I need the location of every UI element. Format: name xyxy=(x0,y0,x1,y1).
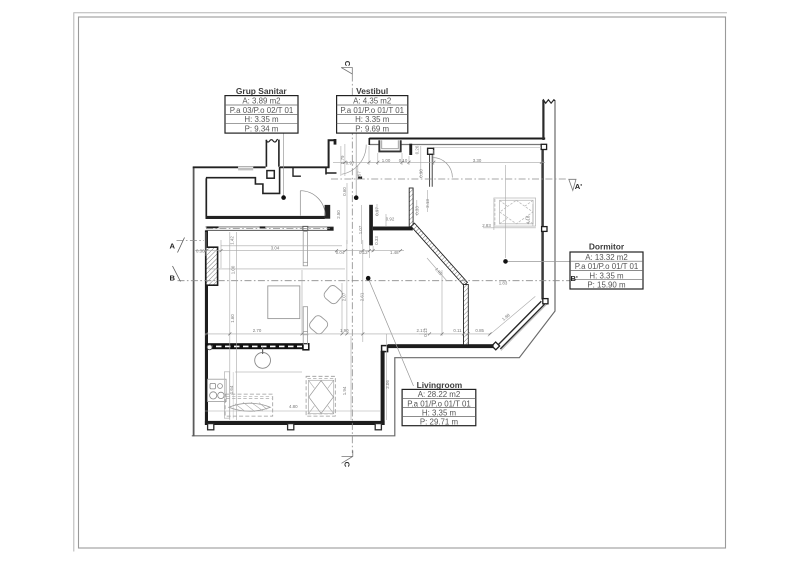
svg-text:1.94: 1.94 xyxy=(342,386,347,395)
svg-text:H: 3.35 m: H: 3.35 m xyxy=(422,408,457,417)
svg-text:2.50: 2.50 xyxy=(336,210,341,219)
svg-text:1.07: 1.07 xyxy=(358,225,363,234)
svg-text:1.60: 1.60 xyxy=(230,314,235,323)
svg-text:Vestibul: Vestibul xyxy=(356,86,388,96)
svg-text:P: 9.69 m: P: 9.69 m xyxy=(355,125,389,134)
svg-text:H: 3.35 m: H: 3.35 m xyxy=(244,115,279,124)
svg-text:Livingroom: Livingroom xyxy=(417,380,463,390)
svg-text:A: 3.89 m2: A: 3.89 m2 xyxy=(242,97,280,106)
svg-text:0.60: 0.60 xyxy=(342,187,347,196)
svg-text:0.97: 0.97 xyxy=(346,161,355,166)
svg-text:A: 28.22 m2: A: 28.22 m2 xyxy=(418,390,461,399)
svg-text:P: 29.71 m: P: 29.71 m xyxy=(420,418,459,427)
svg-text:0.92: 0.92 xyxy=(386,216,395,221)
svg-text:2.70: 2.70 xyxy=(253,328,262,333)
svg-text:1.00: 1.00 xyxy=(231,265,236,274)
svg-text:0.12: 0.12 xyxy=(359,250,368,255)
svg-text:0.33: 0.33 xyxy=(374,236,379,245)
svg-text:0.04: 0.04 xyxy=(336,250,345,255)
svg-text:0.79: 0.79 xyxy=(340,155,345,164)
svg-text:2.61: 2.61 xyxy=(359,292,364,301)
svg-text:0.11: 0.11 xyxy=(453,328,462,333)
svg-text:1.42: 1.42 xyxy=(230,236,235,245)
svg-text:2.13: 2.13 xyxy=(425,199,430,208)
svg-text:2.83: 2.83 xyxy=(482,223,491,228)
svg-text:P.a 03/P.o 02/T 01: P.a 03/P.o 02/T 01 xyxy=(230,106,294,115)
svg-text:A: A xyxy=(170,242,176,251)
svg-text:3.04: 3.04 xyxy=(271,245,280,250)
svg-text:P.a 01/P.o 01/T 01: P.a 01/P.o 01/T 01 xyxy=(575,262,639,271)
svg-text:2.07: 2.07 xyxy=(342,292,347,301)
svg-text:1.57: 1.57 xyxy=(356,171,361,180)
svg-text:0.26: 0.26 xyxy=(414,145,419,154)
svg-text:B': B' xyxy=(571,274,578,283)
svg-text:3.30: 3.30 xyxy=(473,158,482,163)
svg-text:0.30: 0.30 xyxy=(196,248,205,253)
svg-text:H: 3.35 m: H: 3.35 m xyxy=(589,271,624,280)
svg-text:4.18: 4.18 xyxy=(526,215,531,224)
svg-text:B: B xyxy=(170,274,176,283)
svg-text:P.a 01/P.o 01/T 01: P.a 01/P.o 01/T 01 xyxy=(340,106,404,115)
svg-text:P.a 01/P.o 01/T 01: P.a 01/P.o 01/T 01 xyxy=(407,399,471,408)
svg-text:0.33: 0.33 xyxy=(414,206,419,215)
svg-text:H: 3.35 m: H: 3.35 m xyxy=(355,115,390,124)
svg-text:1.64: 1.64 xyxy=(229,385,234,394)
svg-text:Grup Sanitar: Grup Sanitar xyxy=(236,86,287,96)
svg-text:2.06: 2.06 xyxy=(385,380,390,389)
svg-text:1.90: 1.90 xyxy=(340,328,349,333)
svg-text:4.80: 4.80 xyxy=(289,404,298,409)
svg-text:0.90: 0.90 xyxy=(418,169,423,178)
svg-text:A': A' xyxy=(575,182,582,191)
svg-text:C: C xyxy=(343,61,352,67)
svg-text:C: C xyxy=(342,462,351,468)
svg-text:Dormitor: Dormitor xyxy=(589,242,625,252)
svg-text:0.85: 0.85 xyxy=(475,328,484,333)
svg-text:0.12: 0.12 xyxy=(423,328,428,337)
svg-text:P: 15.90 m: P: 15.90 m xyxy=(587,281,626,290)
svg-text:1.48: 1.48 xyxy=(390,250,399,255)
svg-text:1.83: 1.83 xyxy=(499,280,508,285)
svg-text:A: 13.32 m2: A: 13.32 m2 xyxy=(585,253,628,262)
svg-text:1.00: 1.00 xyxy=(382,158,391,163)
svg-text:0.10: 0.10 xyxy=(399,158,408,163)
svg-text:0.97: 0.97 xyxy=(374,207,379,216)
svg-text:P: 9.34 m: P: 9.34 m xyxy=(245,125,279,134)
svg-text:A: 4.35 m2: A: 4.35 m2 xyxy=(353,97,391,106)
